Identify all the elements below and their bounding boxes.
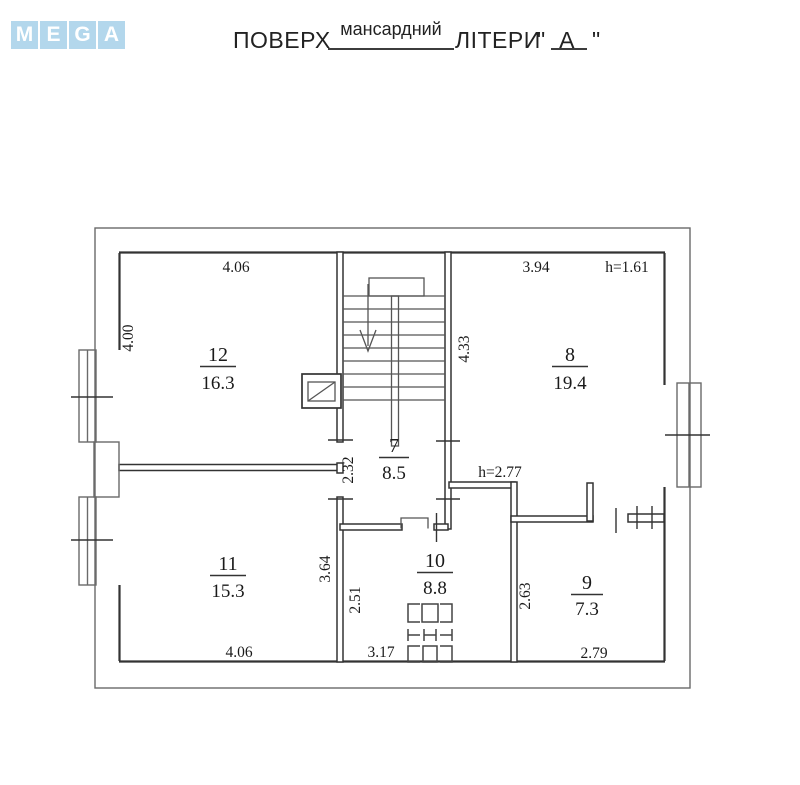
room8-area: 19.4 [553, 373, 587, 394]
wall-room9-top [511, 516, 593, 522]
dim-top-width-right: 3.94 [522, 259, 549, 276]
dim-bottom-width-right: 2.79 [580, 645, 607, 662]
wall-room10-room9 [511, 482, 517, 662]
room10-number: 10 [425, 550, 445, 572]
fixture-bracket-left-1 [408, 604, 420, 622]
wall-hall-bottom-left [340, 524, 402, 530]
stair-treads [343, 296, 445, 400]
dim-ceiling-height-mid: h=2.77 [478, 464, 522, 481]
wall-stair-left [337, 252, 343, 442]
wall-room8-jog [449, 482, 515, 488]
dim-stair-height: 4.33 [456, 335, 473, 362]
fixture-bracket-left-3 [408, 646, 420, 662]
dim-hall-height: 2.32 [340, 456, 357, 483]
dim-top-width-left: 4.06 [222, 259, 249, 276]
stair-stringer [392, 296, 399, 446]
room11-number: 11 [218, 553, 237, 575]
wall-room12-room11 [119, 465, 340, 471]
room7-area: 8.5 [382, 463, 406, 484]
room10-area: 8.8 [423, 578, 447, 599]
door-room9-frame [628, 514, 664, 522]
dim-room10-height: 2.51 [347, 586, 364, 613]
dim-room11-height: 3.64 [317, 555, 334, 582]
dim-bottom-width-mid: 3.17 [367, 644, 394, 661]
wall-room9-stub [587, 483, 593, 521]
room9-number: 9 [582, 572, 592, 594]
room12-area: 16.3 [201, 373, 234, 394]
dim-left-height: 4.00 [120, 324, 137, 351]
dim-room9-height: 2.63 [517, 582, 534, 609]
fixture-bracket-right-1 [440, 604, 452, 622]
wall-room11-room10 [337, 497, 343, 662]
floor-plan-drawing: 12 16.3 8 19.4 7 8.5 11 15.3 10 8.8 9 7.… [0, 0, 800, 785]
door-jamb-room10 [401, 518, 428, 529]
room11-area: 15.3 [211, 581, 244, 602]
fixture-marks-row2 [408, 629, 452, 641]
room8-number: 8 [565, 344, 575, 366]
fixture-square-1 [422, 604, 438, 622]
wall-pier-left [94, 442, 119, 497]
dim-bottom-width-left: 4.06 [225, 644, 252, 661]
room9-area: 7.3 [575, 599, 599, 620]
fixture-square-3 [423, 646, 437, 662]
floor-plan-page: M E G A ПОВЕРХ мансардний ЛІТЕРИ " А " [0, 0, 800, 785]
stair-landing [369, 278, 424, 296]
room7-number: 7 [389, 435, 399, 457]
fixture-bracket-right-3 [440, 646, 452, 662]
room12-number: 12 [208, 344, 228, 366]
dim-ceiling-height-top: h=1.61 [605, 259, 649, 276]
